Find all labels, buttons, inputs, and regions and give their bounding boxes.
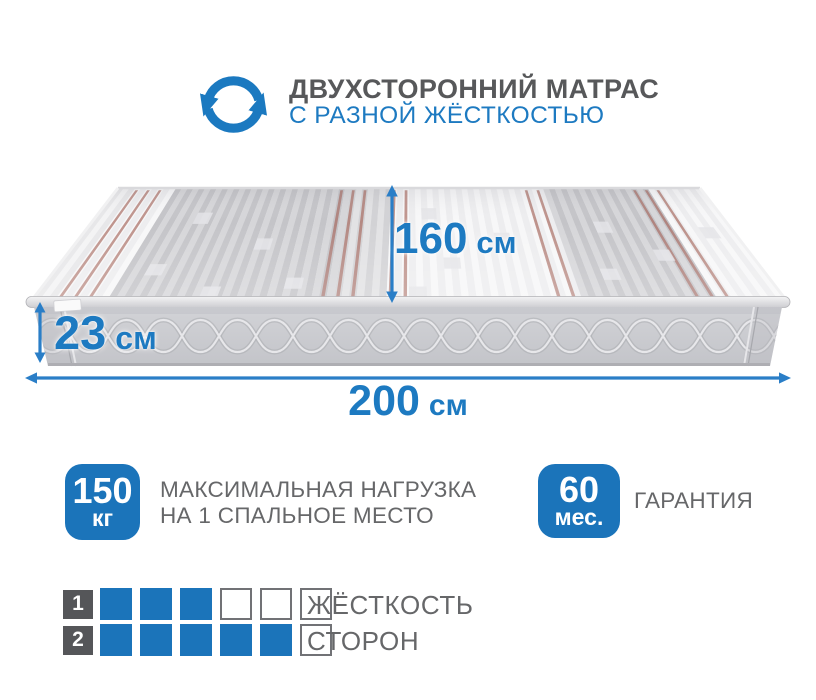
firmness-cells [100,588,332,620]
firmness-label-line2: СТОРОН [307,626,419,657]
height-dimension-label: 23см [54,305,157,360]
firmness-cell-filled [220,624,252,656]
max-load-badge: 150 кг [65,464,140,540]
warranty-badge: 60 мес. [538,464,620,538]
firmness-side-number: 1 [63,590,93,619]
firmness-cell-empty [260,588,292,620]
page-subtitle: С РАЗНОЙ ЖЁСТКОСТЬЮ [289,102,604,130]
depth-unit: см [476,225,516,260]
height-unit: см [115,320,156,356]
mattress-infographic: ДВУХСТОРОННИЙ МАТРАС С РАЗНОЙ ЖЁСТКОСТЬЮ [0,0,816,700]
warranty-unit: мес. [555,506,604,529]
page-title: ДВУХСТОРОННИЙ МАТРАС [289,74,659,105]
firmness-row: 1 [63,588,332,620]
firmness-cells [100,624,332,656]
depth-value: 160 [394,214,467,263]
firmness-cell-filled [100,624,132,656]
two-sided-rotate-icon [197,61,270,143]
firmness-cell-filled [140,588,172,620]
max-load-description: МАКСИМАЛЬНАЯ НАГРУЗКА НА 1 СПАЛЬНОЕ МЕСТ… [160,477,476,529]
max-load-unit: кг [92,507,113,530]
length-dimension-label: 200см [296,377,520,426]
firmness-cell-filled [140,624,172,656]
depth-dimension-label: 160см [394,214,517,264]
length-unit: см [429,389,468,422]
firmness-label-line1: ЖЁСТКОСТЬ [307,590,474,621]
firmness-row: 2 [63,624,332,656]
firmness-cell-filled [180,624,212,656]
max-load-value: 150 [72,474,132,507]
length-value: 200 [348,377,420,425]
height-value: 23 [54,306,106,359]
firmness-cell-empty [220,588,252,620]
firmness-cell-filled [100,588,132,620]
warranty-value: 60 [559,473,599,506]
warranty-description: ГАРАНТИЯ [634,464,753,538]
firmness-side-number: 2 [63,626,93,655]
firmness-cell-filled [260,624,292,656]
firmness-cell-filled [180,588,212,620]
